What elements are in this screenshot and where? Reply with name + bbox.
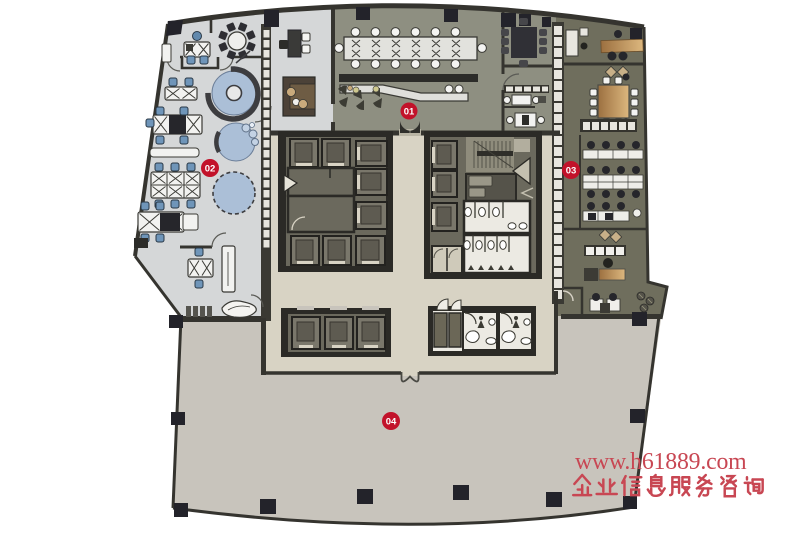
svg-text:04: 04 <box>386 417 397 428</box>
svg-text:03: 03 <box>566 166 577 177</box>
svg-text:02: 02 <box>205 164 216 175</box>
svg-text:www.h61889.com: www.h61889.com <box>575 449 747 475</box>
svg-text:01: 01 <box>404 107 415 118</box>
